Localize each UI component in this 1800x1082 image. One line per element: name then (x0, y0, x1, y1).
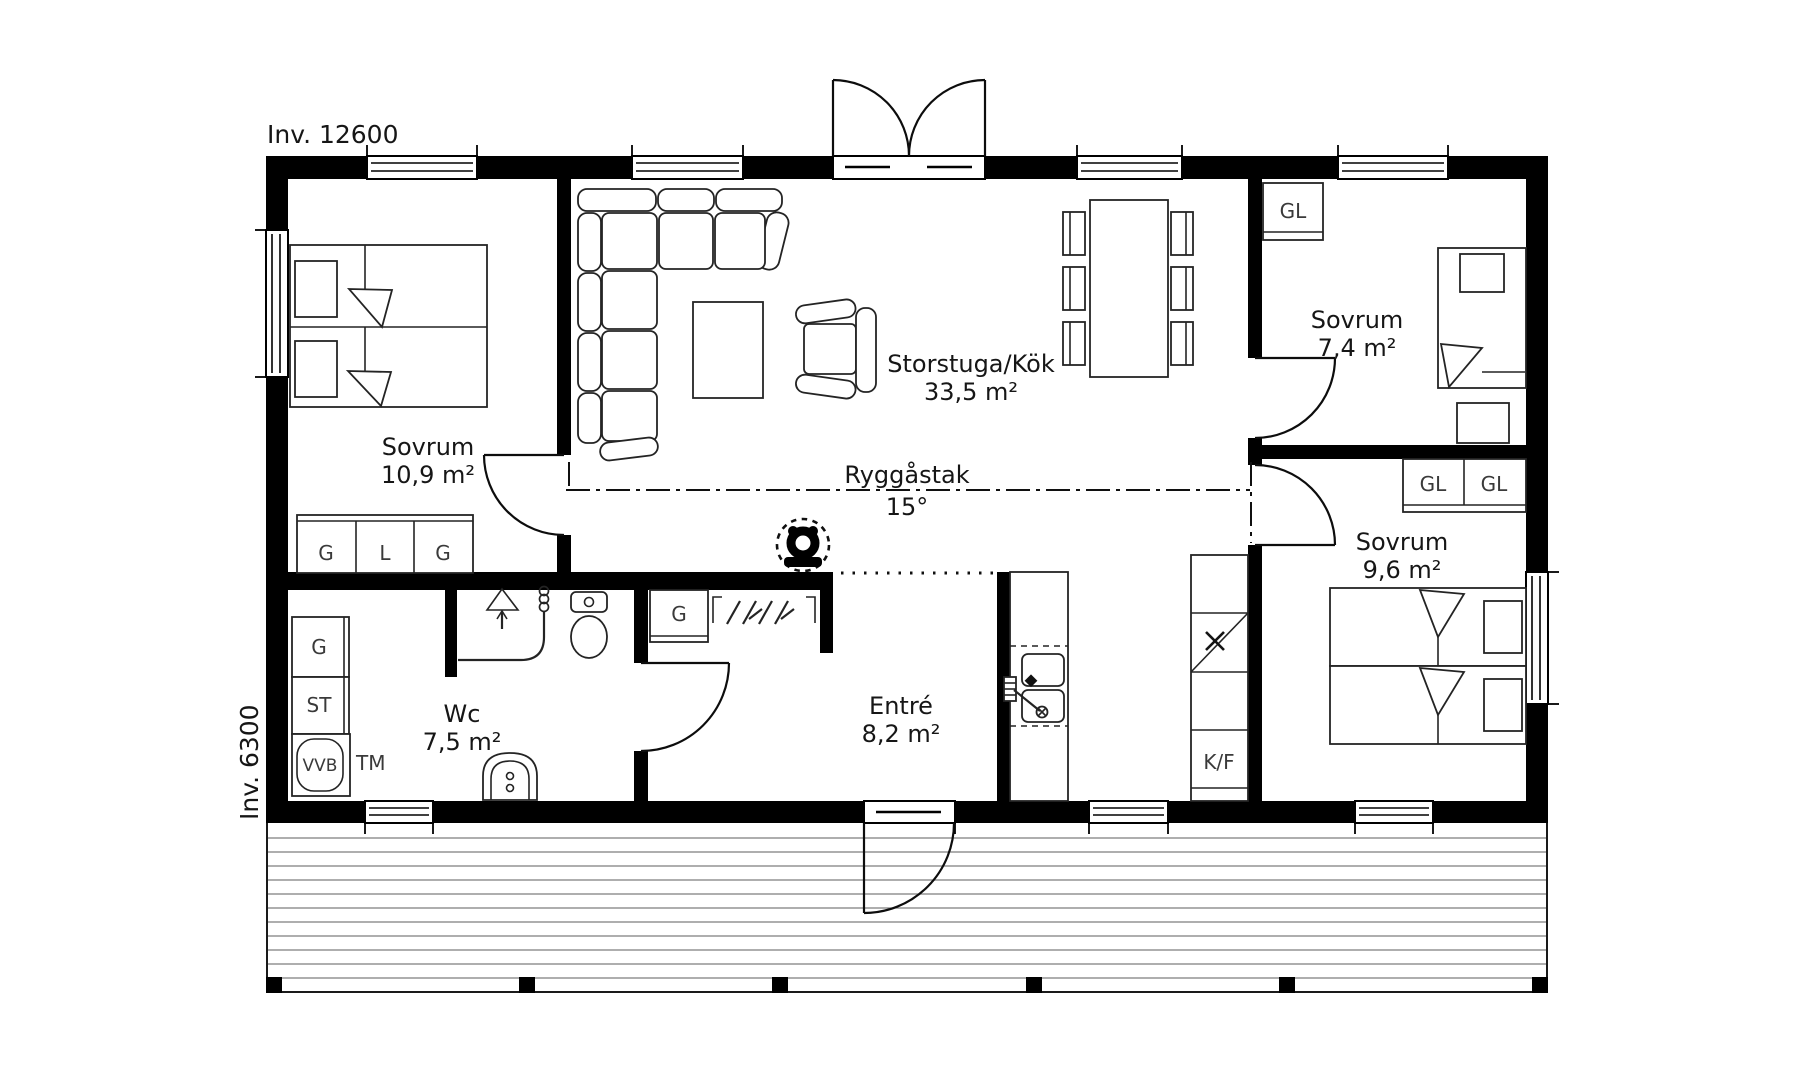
chair (1171, 212, 1193, 255)
bedroom-small-area: 7,4 m² (1318, 334, 1397, 362)
wardrobe-g2-label: G (435, 541, 451, 565)
door-bedroom-medium (1255, 465, 1335, 545)
sink-counter (1004, 572, 1068, 801)
chair (1063, 212, 1085, 255)
closet-gl-label: GL (1280, 199, 1307, 223)
floor-plan-page: K/F (0, 0, 1800, 1082)
armchair (795, 298, 876, 399)
dining-table-set (1063, 200, 1193, 377)
living-kitchen-area: 33,5 m² (924, 378, 1018, 406)
shower-curtain (458, 587, 549, 661)
kitchen-counters: K/F (1004, 555, 1248, 801)
deck-posts (266, 977, 1548, 993)
bedroom-small-name: Sovrum (1311, 306, 1404, 334)
bedroom-large-name: Sovrum (382, 433, 475, 461)
fireplace-stove (777, 519, 829, 571)
pillow (295, 261, 337, 317)
deck-terrace (266, 823, 1548, 993)
wc-area: 7,5 m² (423, 728, 502, 756)
bedroom-medium-name: Sovrum (1356, 528, 1449, 556)
shower-drain (487, 589, 518, 610)
coffee-table (693, 302, 763, 398)
living-kitchen-name: Storstuga/Kök (887, 350, 1055, 378)
wc-g-label: G (311, 635, 327, 659)
pillow (295, 341, 337, 397)
ridge-slope: 15° (886, 493, 929, 521)
bedroom-large-area: 10,9 m² (381, 461, 475, 489)
exterior-wall-right (1526, 156, 1548, 823)
bedroom-medium-area: 9,6 m² (1363, 556, 1442, 584)
width-dimension-label: Inv. 12600 (267, 120, 399, 149)
closet-gl1-label: GL (1420, 472, 1447, 496)
hall-g-label: G (671, 602, 687, 626)
shower (458, 587, 549, 661)
single-bed (1438, 248, 1526, 388)
door-bedroom-large (484, 455, 564, 535)
window-bedroom-medium-bottom (1355, 801, 1433, 834)
bedroom-medium-furniture (1330, 459, 1526, 744)
entry-name: Entré (869, 692, 933, 720)
bedroom-large-furniture (290, 245, 487, 573)
chair (1063, 322, 1085, 365)
single-bed (1330, 666, 1526, 744)
wc-vvb-label: VVB (303, 756, 338, 776)
window-living-top (632, 145, 743, 179)
fridge-freezer-label: K/F (1203, 750, 1234, 774)
closet-gl2-label: GL (1481, 472, 1508, 496)
wardrobe-l-label: L (379, 541, 391, 565)
window-bedroom-large-left (255, 230, 288, 377)
door-bedroom-small (1255, 358, 1335, 438)
toilet (571, 592, 607, 658)
window-wc-bottom (365, 801, 433, 834)
chair (1171, 322, 1193, 365)
wash-basin (483, 753, 537, 800)
hob-counter: K/F (1191, 555, 1248, 801)
pillow (1484, 679, 1522, 731)
wc-tm-label: TM (355, 751, 385, 775)
entry-area: 8,2 m² (862, 720, 941, 748)
wc-st-label: ST (307, 693, 333, 717)
wardrobe-g1-label: G (318, 541, 334, 565)
coat-rack (713, 597, 815, 624)
double-door-top (833, 80, 985, 179)
window-kitchen-bottom (1089, 801, 1168, 834)
window-bedroom-small-top (1338, 145, 1448, 179)
pillow (1460, 254, 1504, 292)
chair (1063, 267, 1085, 310)
chair (1171, 267, 1193, 310)
nightstand (1457, 403, 1509, 443)
door-wc (641, 663, 729, 751)
single-bed (1330, 588, 1526, 666)
entry-door (864, 801, 955, 913)
shower-wall-stub (445, 590, 457, 677)
window-bedroom-large-top (367, 145, 477, 179)
window-bedroom-medium-right (1526, 572, 1559, 704)
floor-plan-drawing: K/F (0, 0, 1800, 1082)
pillow (1484, 601, 1522, 653)
window-kitchen-top (1077, 145, 1182, 179)
wc-name: Wc (444, 700, 481, 728)
double-bed (290, 245, 487, 407)
ridge-label: Ryggåstak (844, 460, 969, 489)
depth-dimension-label: Inv. 6300 (235, 704, 264, 820)
